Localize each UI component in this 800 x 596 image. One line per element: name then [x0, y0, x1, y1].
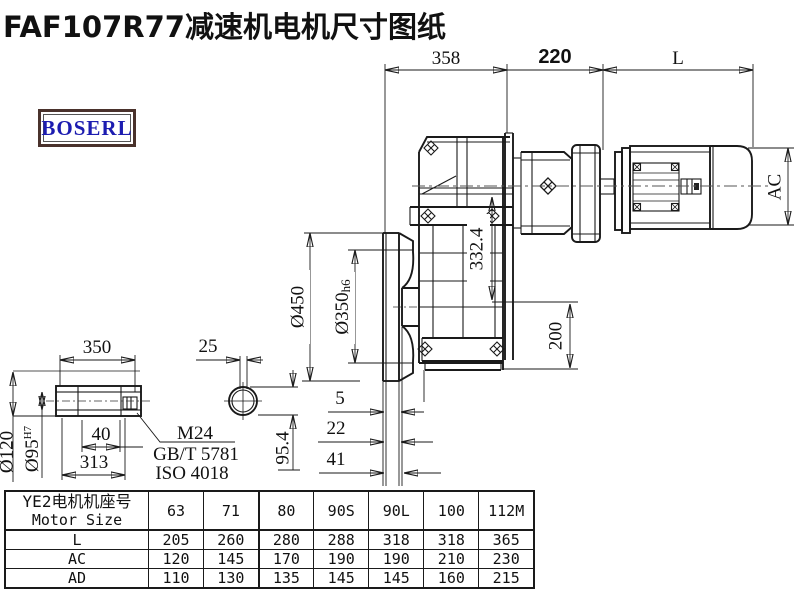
- col-header: 90S: [314, 491, 369, 530]
- dim-L: L: [672, 48, 684, 69]
- header-motor-frame-en: Motor Size: [6, 511, 148, 529]
- cell: 145: [314, 569, 369, 589]
- dim-200: 200: [545, 322, 566, 351]
- height-dimensions: 332.4 200: [466, 197, 578, 369]
- dim-95-4: 95.4: [272, 431, 293, 465]
- row-label: AC: [5, 550, 149, 569]
- cell: 160: [424, 569, 479, 589]
- table-header-row: YE2电机机座号 Motor Size 63 71 80 90S 90L 100…: [5, 491, 534, 530]
- motor-size-table: YE2电机机座号 Motor Size 63 71 80 90S 90L 100…: [4, 490, 535, 589]
- standard-iso: ISO 4018: [155, 463, 228, 484]
- top-dimension-chain: 358 220 L: [385, 46, 753, 233]
- dim-313: 313: [80, 452, 109, 473]
- drawing-sheet: FAF107R77减速机电机尺寸图纸 BOSERL: [0, 0, 800, 596]
- ac-dimension: AC: [748, 148, 794, 225]
- thread-spec: M24: [177, 423, 213, 444]
- bolt-icon: [424, 141, 438, 155]
- cell: 365: [479, 530, 534, 550]
- coupling-housing: [513, 145, 614, 242]
- cell: 215: [479, 569, 534, 589]
- dim-350: Ø350: [332, 292, 353, 334]
- table-row: AC 120 145 170 190 190 210 230: [5, 550, 534, 569]
- table-row: AD 110 130 135 145 145 160 215: [5, 569, 534, 589]
- header-motor-frame-cn: YE2电机机座号: [6, 492, 148, 511]
- col-header: 112M: [479, 491, 534, 530]
- cell: 205: [149, 530, 204, 550]
- dim-22: 22: [327, 418, 346, 439]
- cell: 280: [259, 530, 314, 550]
- dim-350-tolerance: h6: [338, 279, 353, 293]
- col-header: 90L: [369, 491, 424, 530]
- dim-5: 5: [335, 388, 345, 409]
- motor-bolt-icon: [672, 164, 679, 171]
- cell: 190: [314, 550, 369, 569]
- cell: 230: [479, 550, 534, 569]
- dim-shaft-350: 350: [83, 337, 112, 358]
- dim-450: Ø450: [287, 286, 308, 328]
- col-header: 63: [149, 491, 204, 530]
- cell: 318: [424, 530, 479, 550]
- gearbox-housing: [410, 133, 513, 370]
- cell: 145: [204, 550, 259, 569]
- col-header: 100: [424, 491, 479, 530]
- cell: 145: [369, 569, 424, 589]
- bolt-icon: [418, 342, 432, 356]
- dim-25: 25: [199, 336, 218, 357]
- cell: 288: [314, 530, 369, 550]
- cell: 130: [204, 569, 259, 589]
- cell: 190: [369, 550, 424, 569]
- bolt-icon: [490, 342, 504, 356]
- dim-d95-tolerance: H7: [22, 425, 34, 439]
- cell: 120: [149, 550, 204, 569]
- row-label: L: [5, 530, 149, 550]
- cell: 135: [259, 569, 314, 589]
- cell: 170: [259, 550, 314, 569]
- row-label: AD: [5, 569, 149, 589]
- cell: 318: [369, 530, 424, 550]
- motor: [412, 146, 772, 233]
- technical-drawing: 358 220 L: [0, 0, 800, 490]
- motor-bolt-icon: [634, 204, 641, 211]
- standard-gbt: GB/T 5781: [153, 444, 239, 465]
- motor-bolt-icon: [634, 164, 641, 171]
- cell: 260: [204, 530, 259, 550]
- dim-d120: Ø120: [0, 431, 17, 473]
- dim-358: 358: [432, 48, 461, 69]
- dim-220: 220: [538, 46, 571, 68]
- motor-bolt-icon: [672, 204, 679, 211]
- cell: 210: [424, 550, 479, 569]
- dim-41: 41: [327, 449, 346, 470]
- cell: 110: [149, 569, 204, 589]
- dim-AC: AC: [764, 174, 785, 200]
- dim-332-4: 332.4: [466, 227, 487, 270]
- table-row: L 205 260 280 288 318 318 365: [5, 530, 534, 550]
- hollow-shaft-detail: 350 Ø120 Ø95H7 40 3: [0, 337, 239, 484]
- dim-40: 40: [92, 424, 111, 445]
- svg-text:Ø95H7: Ø95H7: [22, 425, 44, 472]
- dim-d95: Ø95: [22, 439, 43, 472]
- col-header: 80: [259, 491, 314, 530]
- col-header: 71: [204, 491, 259, 530]
- bolt-icon: [421, 209, 435, 223]
